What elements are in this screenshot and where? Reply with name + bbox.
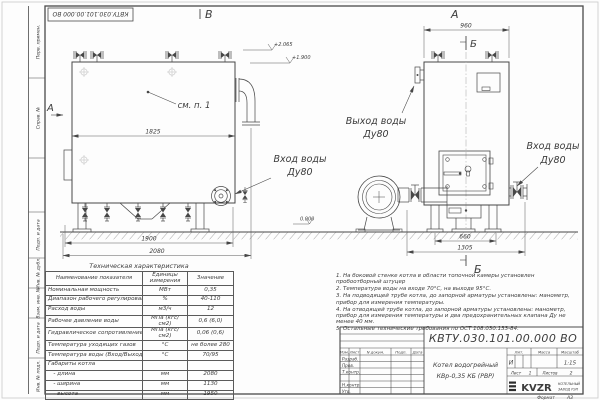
logo-sub2: ЗАВОД РЭП (558, 388, 579, 392)
inlet-front-label-2: Ду80 (539, 155, 565, 166)
spec-row: Диапазон рабочего регулирования%40-110 (46, 295, 234, 305)
title-product-line1: Котел водогрейный (433, 362, 498, 369)
col-podp: Подп. (395, 350, 407, 355)
spec-unit: °С (143, 341, 188, 351)
side-label: Подп. и дата (36, 322, 42, 353)
note-item: 4. На отводящей трубе котла, до запорной… (336, 307, 581, 326)
note-item: 3. На подводящей трубе котла, до запорно… (336, 293, 581, 306)
title-row-labels: Разраб. Пров. Т.контр. Н.контр. Утв. (342, 356, 361, 394)
spec-row: Температура воды (Вход/Выход)°С70/95 (46, 351, 234, 361)
spec-value: 0,35 (188, 286, 234, 296)
spec-value: 12 (188, 305, 234, 315)
title-product-line2: КВр-0,35 КБ (РВР) (437, 373, 495, 380)
mass-header: Масса (538, 350, 551, 355)
spec-unit: °С (143, 351, 188, 361)
spec-unit: мм (143, 390, 188, 400)
view-a-side-label: А (46, 103, 54, 114)
spec-value: 1950 (188, 390, 234, 400)
spec-unit (143, 360, 188, 370)
row-razrab: Разраб. (342, 356, 358, 361)
inlet-front-label-1: Вход воды (526, 141, 580, 152)
spec-table-title: Техническая характеристика (45, 262, 233, 270)
spec-value: 70/95 (188, 351, 234, 361)
scale-value: 1:15 (564, 361, 577, 367)
sheet-num: 1 (529, 370, 532, 376)
side-label: Инв. № подл. (36, 360, 42, 392)
spec-value: не более 280 (188, 341, 234, 351)
dim-1305: 1305 (457, 245, 472, 252)
factory-logo: KVZR КОТЕЛЬНЫЙ ЗАВОД РЭП (509, 381, 580, 394)
frame-side-labels: Перв. примен. Справ. № Подп. и дата Инв.… (36, 25, 42, 392)
spec-table: Наименование показателя Единицы измерени… (45, 271, 234, 400)
boiler-front-view (356, 51, 527, 232)
inlet-side-label-2: Ду80 (286, 167, 312, 178)
title-col-headers: Изм. Лист N докум. Подп. Дата (340, 350, 423, 355)
spec-unit: МПа (кгс/см2) (143, 315, 188, 328)
spec-name: - длина (46, 370, 143, 380)
spec-name: Диапазон рабочего регулирования (46, 295, 143, 305)
spec-unit: мм (143, 380, 188, 390)
spec-header-unit: Единицы измерения (143, 272, 188, 286)
elevation-mid: +1.900 (292, 55, 311, 61)
drawing-sheet: Перв. примен. Справ. № Подп. и дата Инв.… (0, 0, 600, 400)
side-label: Справ. № (36, 107, 42, 130)
spec-row: Рабочее давление водыМПа (кгс/см2)0,6 (6… (46, 315, 234, 328)
spec-row: - высотамм1950 (46, 390, 234, 400)
view-b-label: В (205, 8, 213, 21)
format-label: Формат (537, 395, 555, 400)
col-data: Дата (412, 350, 424, 355)
dim-2080: 2080 (149, 248, 164, 255)
spec-name: Температура воды (Вход/Выход) (46, 351, 143, 361)
spec-unit: % (143, 295, 188, 305)
format-value: А3 (566, 395, 573, 400)
inlet-side-label-1: Вход воды (273, 154, 327, 165)
spec-row: Гидравлическое сопротивление котлаМПа (к… (46, 328, 234, 341)
spec-unit: м3/ч (143, 305, 188, 315)
sheets-num: 2 (570, 370, 573, 376)
col-dokum: N докум. (367, 350, 385, 355)
logo-sub1: КОТЕЛЬНЫЙ (558, 381, 580, 386)
view-a-top-label: А (450, 8, 459, 21)
spec-row: - ширинамм1130 (46, 380, 234, 390)
spec-name: - ширина (46, 380, 143, 390)
side-label: Подп. и дата (36, 219, 42, 250)
spec-row: Номинальная мощностьМВт0,35 (46, 286, 234, 296)
spec-name: Габариты котла (46, 360, 143, 370)
boiler-side-view (64, 51, 260, 232)
spec-header-name: Наименование показателя (46, 272, 143, 286)
spec-unit: мм (143, 370, 188, 380)
spec-name: Температура уходящих газов (46, 341, 143, 351)
doc-number-stamp: КВТУ.030.101.00.000 ВО (48, 8, 133, 21)
row-prov: Пров. (342, 363, 354, 368)
side-label: Перв. примен. (36, 25, 42, 60)
lit-header: Лит. (514, 350, 524, 355)
blower-fan (356, 176, 402, 232)
spec-row: Габариты котла (46, 360, 234, 370)
dim-1825: 1825 (145, 129, 160, 136)
outlet-label-2: Ду80 (362, 129, 388, 140)
note-item: 2. Температура воды на входе 70°С, на вы… (336, 286, 581, 292)
dim-660: 660 (459, 234, 471, 241)
spec-row: Температура уходящих газов°Сне более 280 (46, 341, 234, 351)
dim-1900: 1900 (141, 236, 156, 243)
side-label: Взам. инв. № (36, 287, 42, 318)
spec-unit: МВт (143, 286, 188, 296)
spec-name: Гидравлическое сопротивление котла (46, 328, 143, 341)
doc-number-stamp-text: КВТУ.030.101.00.000 ВО (52, 10, 128, 17)
spec-value: 0,06 (0,6) (188, 328, 234, 341)
elevation-top: +2.065 (274, 42, 293, 48)
spec-value: 40-110 (188, 295, 234, 305)
col-list: Лист (349, 350, 360, 355)
spec-name: Рабочее давление воды (46, 315, 143, 328)
outlet-label-1: Выход воды (346, 116, 407, 127)
dim-960: 960 (460, 23, 472, 30)
row-utv: Утв. (342, 389, 351, 394)
callouts: см. п. 1 Вход воды Ду80 Выход воды Ду80 … (147, 86, 580, 194)
elevation-marks (243, 44, 313, 224)
spec-row: Расход водым3/ч12 (46, 305, 234, 315)
spec-row: - длинамм2080 (46, 370, 234, 380)
spec-unit: МПа (кгс/см2) (143, 328, 188, 341)
spec-value: 0,6 (6,0) (188, 315, 234, 328)
spec-header-row: Наименование показателя Единицы измерени… (46, 272, 234, 286)
spec-value: 2080 (188, 370, 234, 380)
row-nkontr: Н.контр. (342, 382, 361, 387)
scale-header: Масштаб (561, 350, 580, 355)
spec-value: 1130 (188, 380, 234, 390)
section-b-top-label: Б (470, 39, 477, 50)
spec-name: - высота (46, 390, 143, 400)
side-label: Инв. № дубл. (36, 257, 42, 288)
technical-notes: 1. На боковой стенке котла в области топ… (336, 273, 581, 333)
spec-header-value: Значение (188, 272, 234, 286)
spec-name: Расход воды (46, 305, 143, 315)
title-doc-number: КВТУ.030.101.00.000 ВО (429, 332, 577, 345)
sheets-label: Листов (542, 370, 559, 375)
logo-text: KVZR (521, 383, 552, 394)
elevation-zero: 0.000 (300, 217, 314, 223)
note-item: 5. Остальные технические требования по О… (336, 326, 581, 332)
lit-value: И (509, 360, 514, 367)
note-item: 1. На боковой стенке котла в области топ… (336, 273, 581, 286)
col-izm: Изм. (340, 350, 349, 355)
row-tkontr: Т.контр. (342, 369, 360, 374)
spec-name: Номинальная мощность (46, 286, 143, 296)
see-note-callout: см. п. 1 (178, 101, 211, 111)
ground-line (60, 232, 578, 239)
sheet-label: Лист (510, 370, 522, 375)
spec-value (188, 360, 234, 370)
